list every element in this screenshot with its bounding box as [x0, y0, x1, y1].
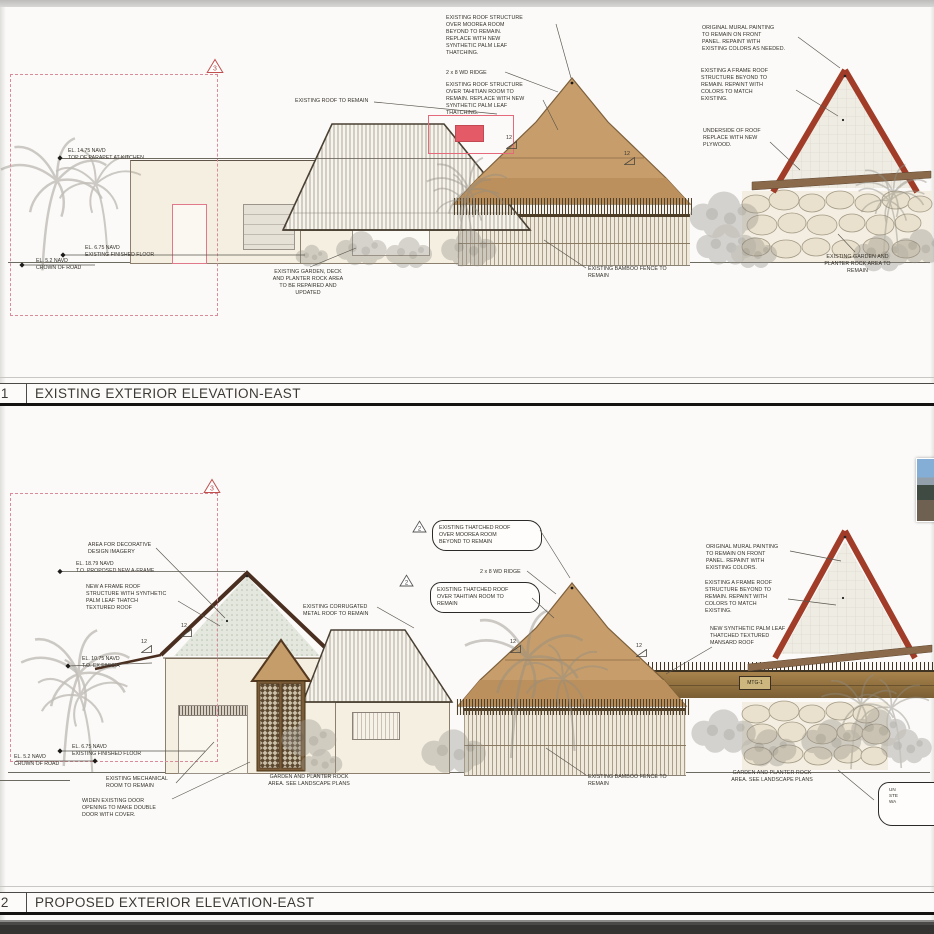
note-decorative: AREA FOR DECORATIVE DESIGN IMAGERY: [88, 542, 164, 556]
elevation-marker-fascia: EL. 10.75 NAVDT.O. EX FASCIA: [82, 656, 120, 670]
note-mechanical: EXISTING MECHANICAL ROOM TO REMAIN: [106, 776, 184, 790]
rock-wall: [742, 701, 890, 770]
slope-indicator: 12: [624, 152, 635, 165]
note-mural: ORIGINAL MURAL PAINTING TO REMAIN ON FRO…: [706, 544, 798, 572]
title-bar-proposed: 02 PROPOSED EXTERIOR ELEVATION-EAST: [0, 892, 934, 915]
note-garden-right: GARDEN AND PLANTER ROCK AREA. SEE LANDSC…: [726, 770, 818, 784]
note-tahitian-roof: EXISTING ROOF STRUCTURE OVER TAHITIAN RO…: [446, 82, 550, 117]
elevation-marker-finished-floor: EL. 6.75 NAVDEXISTING FINISHED FLOOR: [85, 245, 154, 259]
note-ridge: 2 x 8 WD RIDGE: [446, 70, 487, 77]
elevation-marker-crown-of-road: EL. 5.2 NAVDCROWN OF ROAD: [36, 258, 81, 272]
slope-triangle-icon: [141, 645, 152, 653]
revision-cloud: [10, 74, 218, 316]
thatch-fringe: [452, 198, 692, 215]
slope-triangle-icon: [181, 629, 192, 637]
note-garden-left: GARDEN AND PLANTER ROCK AREA. SEE LANDSC…: [264, 774, 354, 788]
rock-wall: [742, 190, 932, 262]
detail-number: 02: [0, 893, 27, 912]
note-new-aframe: NEW A FRAME ROOF STRUCTURE WITH SYNTHETI…: [86, 584, 178, 612]
note-garden-deck: EXISTING GARDEN, DECK AND PLANTER ROCK A…: [256, 269, 360, 297]
slope-triangle-icon: [624, 157, 635, 165]
drawing-sheet: 3 EXISTING ROOF STRUCTURE OVER MOOREA RO…: [0, 0, 934, 934]
view-title-proposed: PROPOSED EXTERIOR ELEVATION-EAST: [27, 895, 314, 910]
photo-edge-top: [0, 0, 934, 7]
note-bamboo: EXISTING BAMBOO FENCE TO REMAIN: [588, 774, 694, 788]
mansard-roof-band: [650, 670, 934, 698]
slope-indicator: 12: [181, 624, 192, 637]
existing-elevation-viewport: 3 EXISTING ROOF STRUCTURE OVER MOOREA RO…: [0, 8, 934, 378]
fence-rail: [464, 745, 686, 746]
elevation-marker-parapet: EL. 14.75 NAVDTOP OF PARAPET AT KITCHEN: [68, 148, 144, 162]
roof-edge-beam: [752, 171, 931, 190]
window-opening: [352, 712, 400, 740]
sign-panel: [243, 204, 295, 250]
view-title-existing: EXISTING EXTERIOR ELEVATION-EAST: [27, 386, 301, 401]
detail-number: 01: [0, 384, 27, 403]
svg-text:3: 3: [210, 486, 214, 493]
revision-triangle: 3: [203, 478, 221, 494]
photo-edge-bottom: [0, 920, 934, 934]
cloud-note-moorea: EXISTING THATCHED ROOF OVER MOOREA ROOM …: [432, 520, 542, 551]
corner-cloud-note: UN STE WA: [878, 782, 934, 826]
note-mural: ORIGINAL MURAL PAINTING TO REMAIN ON FRO…: [702, 25, 796, 53]
slope-triangle-icon: [506, 141, 517, 149]
window-opening: [352, 224, 430, 256]
note-mansard: NEW SYNTHETIC PALM LEAF THATCHED TEXTURE…: [710, 626, 802, 647]
revision-triangle: 3: [206, 58, 224, 74]
markup-highlight: [455, 125, 484, 142]
slope-triangle-icon: [636, 649, 647, 657]
note-ridge: 2 x 8 WD RIDGE: [480, 569, 521, 576]
note-aframe-beyond: EXISTING A FRAME ROOF STRUCTURE BEYOND T…: [701, 68, 795, 103]
slope-indicator: 12: [510, 640, 521, 653]
elevation-marker-finished-floor: EL. 6.75 NAVDEXISTING FINISHED FLOOR: [72, 744, 141, 758]
slope-indicator: 12: [506, 136, 517, 149]
note-corrugated: EXISTING CORRUGATED METAL ROOF TO REMAIN: [303, 604, 377, 618]
road-line: [0, 780, 70, 781]
viewport-border: [0, 886, 934, 887]
reference-photo-thumbnail: [916, 458, 934, 522]
cloud-note-tahitian: EXISTING THATCHED ROOF OVER TAHITIAN ROO…: [430, 582, 540, 613]
fence-rail: [458, 243, 690, 244]
title-bar-existing: 01 EXISTING EXTERIOR ELEVATION-EAST: [0, 383, 934, 406]
proposed-elevation-viewport: 3 2 2 AREA FOR DECORATIVE DESIGN IMAGERY…: [0, 418, 934, 888]
note-aframe-beyond: EXISTING A FRAME ROOF STRUCTURE BEYOND T…: [705, 580, 797, 615]
bamboo-fence: [464, 708, 686, 776]
note-underside: UNDERSIDE OF ROOF REPLACE WITH NEW PLYWO…: [703, 128, 775, 149]
viewport-border: [0, 377, 934, 378]
slope-indicator: 12: [636, 644, 647, 657]
revision-triangle: 2: [399, 574, 414, 587]
elevation-marker-aframe-top: EL. 18.79 NAVDT.O. PROPOSED NEW A-FRAME: [76, 561, 154, 575]
revision-triangle: 2: [412, 520, 427, 533]
note-garden-rock: EXISTING GARDEN AND PLANTER ROCK AREA TO…: [810, 254, 905, 275]
mtg-tag: MTG-1: [739, 676, 771, 690]
note-moorea-roof: EXISTING ROOF STRUCTURE OVER MOOREA ROOM…: [446, 15, 554, 57]
bamboo-fence: [458, 214, 690, 266]
slope-triangle-icon: [510, 645, 521, 653]
note-roof-remain: EXISTING ROOF TO REMAIN: [295, 98, 368, 105]
svg-text:3: 3: [213, 66, 217, 73]
slope-indicator: 12: [141, 640, 152, 653]
elevation-marker-crown-of-road: EL. 5.2 NAVDCROWN OF ROAD: [14, 754, 59, 768]
note-widen-door: WIDEN EXISTING DOOR OPENING TO MAKE DOUB…: [82, 798, 174, 819]
note-bamboo: EXISTING BAMBOO FENCE TO REMAIN: [588, 266, 694, 280]
